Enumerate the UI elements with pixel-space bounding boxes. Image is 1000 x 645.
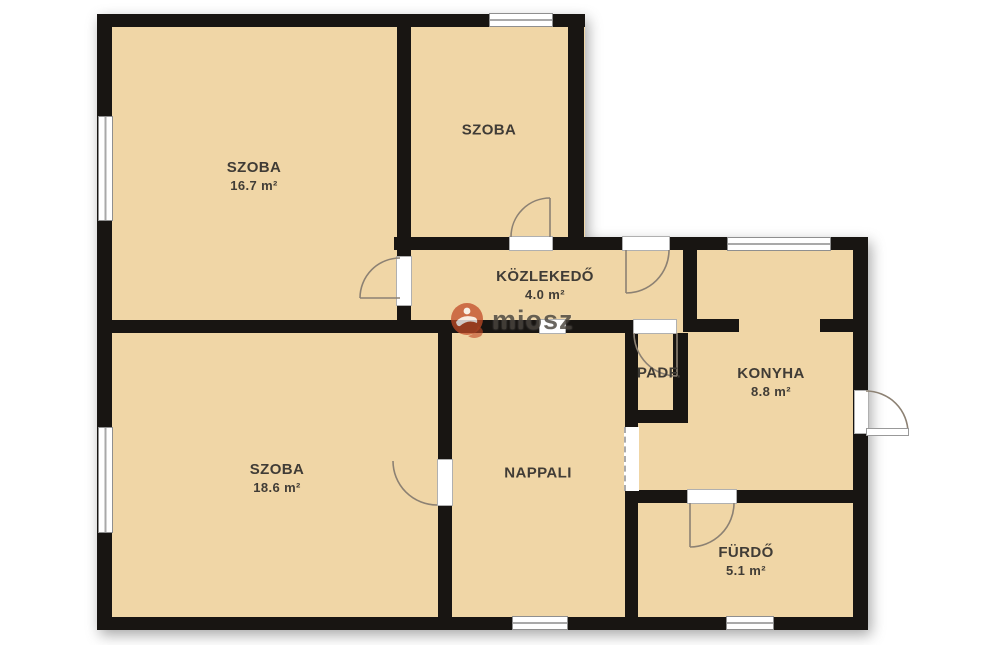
room-label-kozlekedo: KÖZLEKEDŐ 4.0 m² xyxy=(496,268,594,302)
wall-konyha-west xyxy=(683,250,697,332)
wall-stub-konyha-right xyxy=(820,319,858,332)
room-label-szoba-16-7: SZOBA 16.7 m² xyxy=(227,159,282,193)
watermark: miosz xyxy=(448,300,574,340)
room-name: SZOBA xyxy=(250,461,305,480)
room-name: PADF. xyxy=(637,365,681,384)
door-threshold-szoba1-kozlekedo xyxy=(396,256,412,306)
room-area: 18.6 m² xyxy=(250,480,305,496)
door-threshold-szoba2-kozlekedo xyxy=(509,236,553,251)
room-area: 16.7 m² xyxy=(227,178,282,194)
window-szoba2-top xyxy=(489,13,553,27)
door-threshold-nappali-szoba3 xyxy=(437,459,453,506)
watermark-logo-icon xyxy=(448,300,488,340)
window-nappali-bottom xyxy=(512,616,568,630)
watermark-text: miosz xyxy=(492,305,574,336)
window-konyha-top xyxy=(727,237,831,251)
room-label-nappali: NAPPALI xyxy=(504,465,572,484)
wall-padf-bottom xyxy=(625,410,688,423)
room-name: SZOBA xyxy=(227,159,282,178)
window-szoba3-left xyxy=(98,427,113,533)
wall-right-upper-section xyxy=(568,14,584,250)
wall-furdo-top xyxy=(625,490,868,503)
window-furdo-bottom xyxy=(726,616,774,630)
room-name: SZOBA xyxy=(462,122,517,141)
room-label-padf: PADF. xyxy=(637,365,681,384)
room-label-szoba-18-6: SZOBA 18.6 m² xyxy=(250,461,305,495)
door-threshold-padf xyxy=(633,319,677,334)
wall-left xyxy=(97,14,112,630)
room-label-furdo: FÜRDŐ 5.1 m² xyxy=(718,544,773,578)
room-name: KÖZLEKEDŐ xyxy=(496,268,594,287)
window-szoba1-left xyxy=(98,116,113,221)
door-threshold-konyha-exterior xyxy=(854,390,869,434)
room-name: NAPPALI xyxy=(504,465,572,484)
room-label-szoba-top: SZOBA xyxy=(462,122,517,141)
room-label-konyha: KONYHA 8.8 m² xyxy=(737,365,804,399)
floor-plan: SZOBA 16.7 m² SZOBA KÖZLEKEDŐ 4.0 m² PAD… xyxy=(0,0,1000,645)
door-threshold-entrance xyxy=(622,236,670,251)
room-area: 5.1 m² xyxy=(718,563,773,579)
wall-stub-konyha-left xyxy=(697,319,739,332)
opening-nappali-konyha xyxy=(624,427,639,491)
room-area: 8.8 m² xyxy=(737,384,804,400)
room-name: FÜRDŐ xyxy=(718,544,773,563)
door-threshold-furdo xyxy=(687,489,737,504)
room-name: KONYHA xyxy=(737,365,804,384)
